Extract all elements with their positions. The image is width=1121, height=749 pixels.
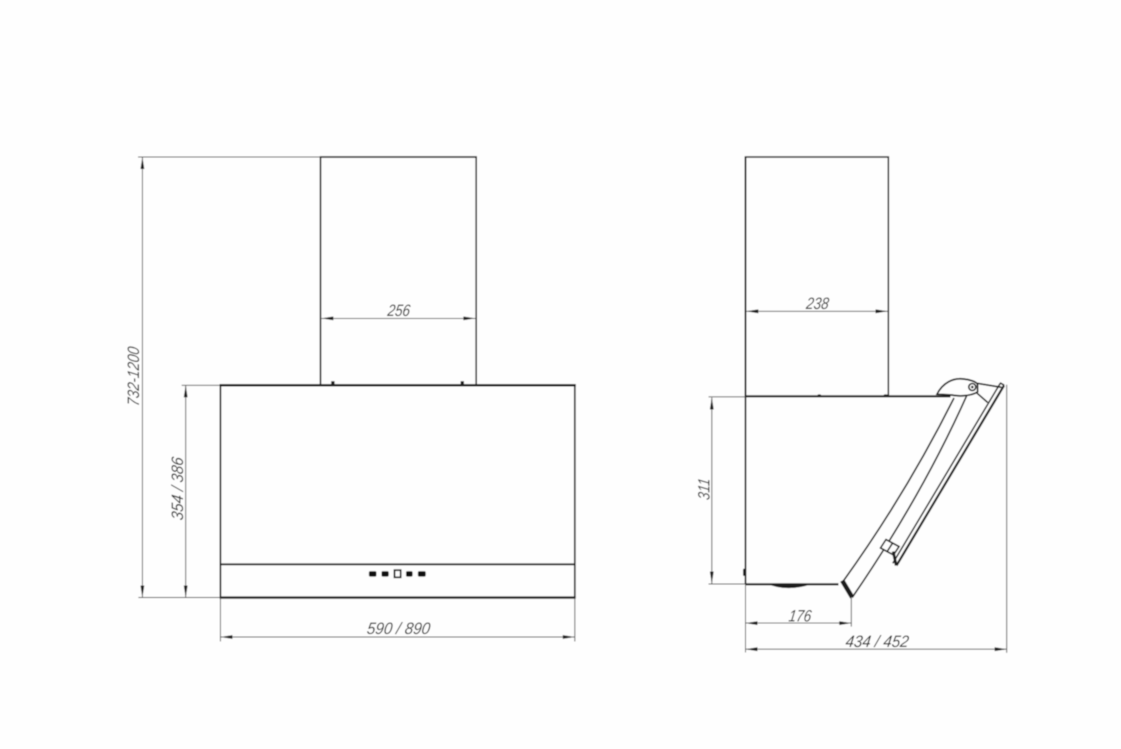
svg-text:311: 311 — [695, 477, 714, 501]
svg-text:256: 256 — [386, 301, 413, 320]
svg-text:590 / 890: 590 / 890 — [366, 619, 432, 638]
svg-text:176: 176 — [788, 606, 814, 625]
svg-text:238: 238 — [804, 294, 831, 313]
svg-text:434 / 452: 434 / 452 — [844, 632, 910, 651]
svg-text:732-1200: 732-1200 — [124, 345, 143, 407]
svg-text:354 / 386: 354 / 386 — [168, 455, 187, 521]
